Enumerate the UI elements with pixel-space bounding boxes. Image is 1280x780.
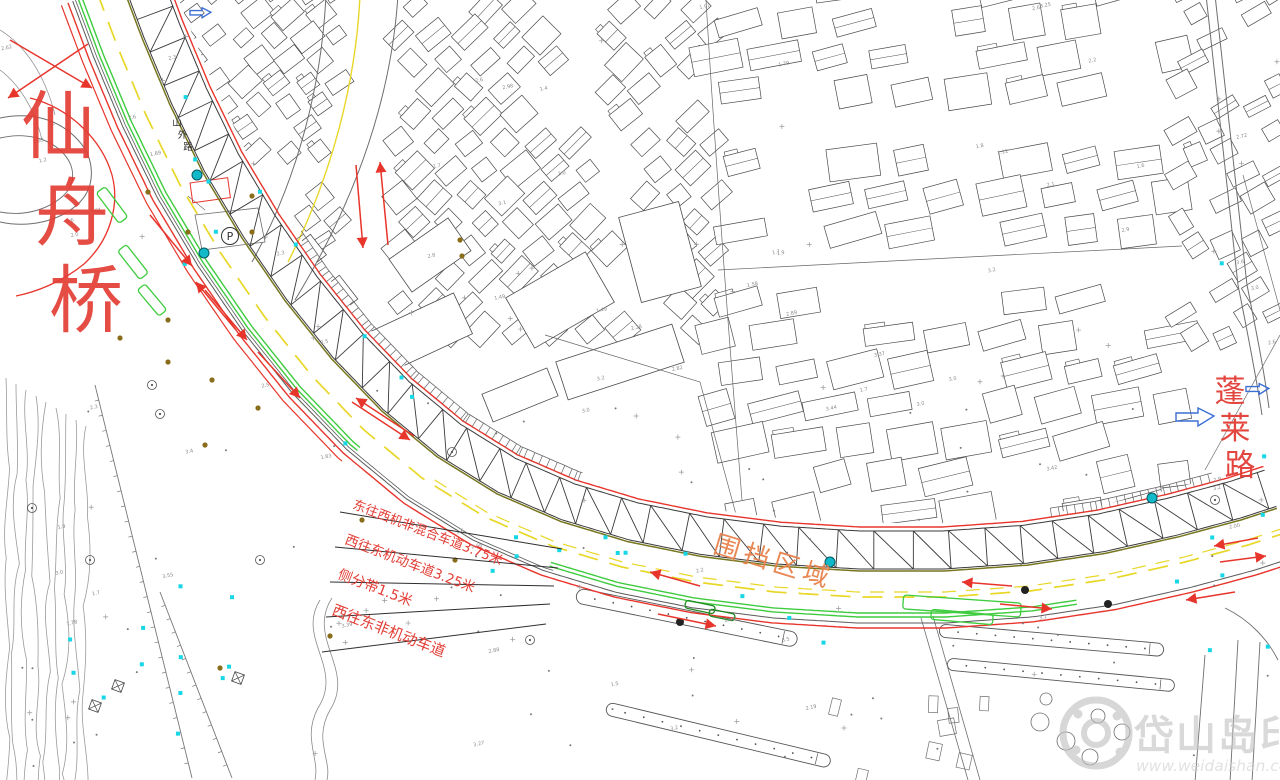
svg-text:1.89: 1.89	[150, 150, 162, 158]
penglai-road-label: 莱	[1220, 411, 1251, 447]
watermark-title: 岱山岛印	[1133, 713, 1280, 759]
minor-road-label: 路	[183, 141, 193, 153]
svg-text:3.0: 3.0	[55, 569, 64, 577]
svg-text:3.37: 3.37	[874, 351, 886, 359]
parking-sign-letter: P	[227, 230, 234, 243]
minor-road-label: 山	[172, 118, 182, 129]
bridge-name-label: 桥	[49, 258, 123, 344]
svg-text:2.3: 2.3	[89, 404, 98, 412]
svg-text:2.3: 2.3	[276, 250, 285, 258]
svg-text:3.0: 3.0	[916, 401, 925, 409]
svg-text:1.97: 1.97	[699, 3, 711, 11]
enclosure-zone-label: 围挡区域	[710, 530, 837, 595]
svg-text:2.3: 2.3	[168, 54, 177, 62]
cad-drawing-canvas: 1.782.61.123.52.73.02.62.981.22.32.23.02…	[0, 0, 1280, 780]
svg-text:2.00: 2.00	[1229, 523, 1241, 531]
svg-text:2.72: 2.72	[1236, 133, 1248, 141]
watermark-url: www.weidaishan.com	[1136, 757, 1280, 775]
svg-text:2.82: 2.82	[671, 365, 683, 373]
svg-text:3.25: 3.25	[1039, 2, 1051, 10]
watermark-logo	[1063, 700, 1129, 766]
svg-text:2.6: 2.6	[475, 77, 484, 85]
svg-text:2.94: 2.94	[1114, 0, 1126, 3]
minor-roads-and-piers	[0, 0, 1280, 780]
svg-text:1.83: 1.83	[320, 453, 332, 461]
minor-road-label: 外	[178, 129, 188, 141]
svg-text:1.79: 1.79	[778, 60, 790, 68]
svg-text:2.19: 2.19	[805, 704, 817, 712]
svg-text:2.89: 2.89	[786, 310, 798, 318]
lane-note-3: 侧分带1.5米	[336, 567, 415, 610]
svg-text:1.9: 1.9	[57, 524, 66, 532]
penglai-road-label: 蓬	[1215, 374, 1246, 410]
svg-text:3.2: 3.2	[987, 267, 996, 275]
svg-text:2.2: 2.2	[1088, 57, 1097, 65]
svg-text:2.5: 2.5	[320, 339, 329, 347]
lane-note-4: 西往东非机动车道	[330, 601, 448, 661]
svg-text:2.6: 2.6	[1267, 339, 1276, 347]
svg-text:1.4: 1.4	[539, 85, 548, 93]
svg-text:1.7: 1.7	[92, 590, 101, 598]
svg-text:1.78: 1.78	[66, 619, 78, 627]
svg-text:1.5: 1.5	[610, 681, 619, 689]
building-fabric	[134, 0, 1280, 532]
svg-text:1.7: 1.7	[859, 386, 868, 394]
svg-text:1.49: 1.49	[596, 306, 608, 314]
svg-text:3.55: 3.55	[162, 572, 174, 580]
svg-text:1.49: 1.49	[494, 294, 506, 302]
watermark: 岱山岛印 www.weidaishan.com	[1063, 700, 1280, 775]
bridge-name-label: 仙	[21, 84, 95, 170]
svg-text:3.2: 3.2	[1213, 485, 1222, 493]
traffic-plan-drawing: 1.782.61.123.52.73.02.62.981.22.32.23.02…	[0, 0, 1280, 780]
svg-text:2.9: 2.9	[1213, 476, 1222, 484]
svg-text:2.2: 2.2	[695, 567, 704, 575]
svg-text:2.88: 2.88	[488, 647, 500, 655]
bridge-name-label: 舟	[35, 171, 109, 257]
svg-text:3.0: 3.0	[948, 376, 957, 384]
svg-text:2.6: 2.6	[128, 114, 137, 122]
svg-text:2.5: 2.5	[261, 382, 270, 390]
svg-text:1.8: 1.8	[975, 143, 984, 151]
svg-text:1.9: 1.9	[776, 250, 785, 258]
svg-text:3.27: 3.27	[473, 740, 485, 748]
svg-text:3.0: 3.0	[557, 170, 566, 178]
svg-text:2.62: 2.62	[1, 44, 13, 52]
penglai-road-label: 路	[1225, 448, 1256, 484]
svg-text:2.28: 2.28	[630, 324, 642, 332]
svg-text:3.42: 3.42	[1046, 464, 1058, 472]
svg-text:3.4: 3.4	[185, 448, 194, 456]
svg-text:3.0: 3.0	[581, 407, 590, 415]
